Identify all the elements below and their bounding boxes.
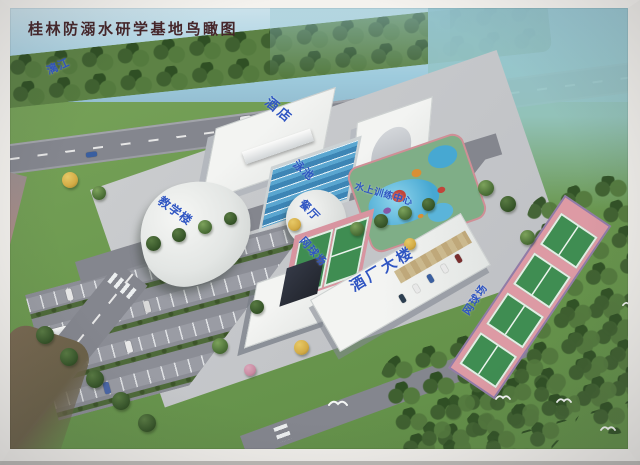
egret-bird-icon	[494, 393, 512, 401]
tree	[250, 300, 264, 314]
crosswalk	[273, 423, 292, 443]
tree	[500, 196, 516, 212]
tree	[520, 230, 535, 245]
tree	[60, 348, 78, 366]
photo-edge-shadow	[0, 461, 640, 465]
tree	[374, 214, 388, 228]
small-pool	[425, 141, 461, 172]
tree	[422, 198, 435, 211]
aerial-rendering-photo: 桂林防溺水研学基地鸟瞰图 漓江 酒店 泳池 餐厅 教学楼 网球场 酒厂大楼 网球…	[0, 0, 640, 465]
tree	[294, 340, 309, 355]
page-title: 桂林防溺水研学基地鸟瞰图	[28, 18, 238, 39]
egret-bird-icon	[556, 396, 572, 404]
egret-bird-icon	[622, 300, 636, 307]
egret-bird-icon	[328, 398, 348, 407]
tree	[92, 186, 106, 200]
tree	[112, 392, 130, 410]
tree	[138, 414, 156, 432]
tree	[172, 228, 186, 242]
atmospheric-haze	[270, 0, 450, 80]
tree	[36, 326, 54, 344]
tree	[198, 220, 212, 234]
tree	[288, 218, 301, 231]
tree	[350, 222, 364, 236]
tree	[244, 364, 256, 376]
egret-bird-icon	[600, 424, 616, 432]
tree	[212, 338, 228, 354]
crosswalk	[107, 272, 138, 300]
tree	[62, 172, 78, 188]
tree	[86, 370, 104, 388]
tree	[478, 180, 494, 196]
tree	[398, 206, 412, 220]
tree	[146, 236, 161, 251]
tree	[224, 212, 237, 225]
